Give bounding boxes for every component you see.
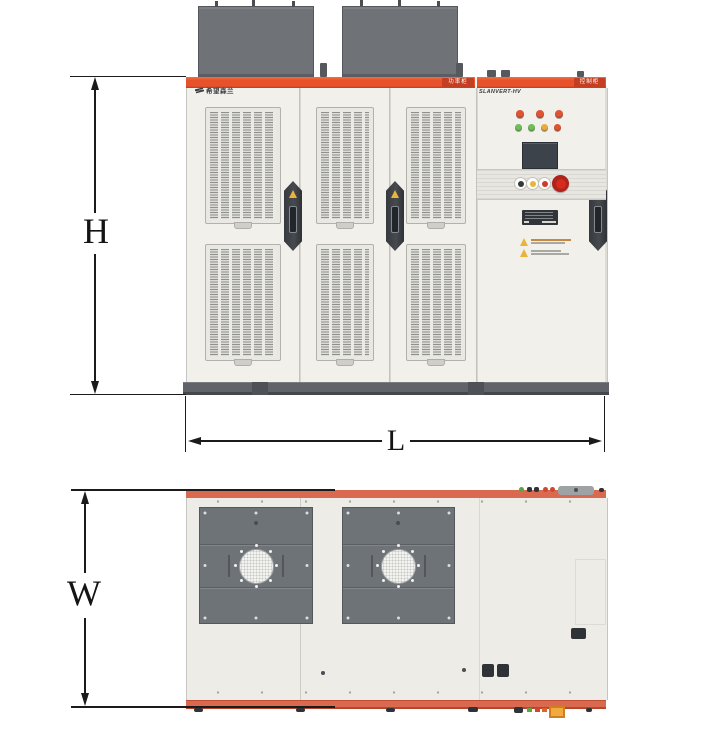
brand-logo: 希望森兰 [195, 85, 234, 95]
dimension-line [410, 440, 589, 442]
header-band [186, 77, 606, 88]
indicator-lamp [554, 124, 561, 131]
base-bracket [468, 382, 484, 395]
edge-fitting [599, 488, 604, 492]
screw-row [196, 691, 600, 694]
fan-bolt-dot [411, 579, 414, 582]
fan-bolt-dot [376, 564, 379, 567]
fan-bolt-dot [397, 544, 400, 547]
fan-bolt-dot [417, 564, 420, 567]
arrowhead-down [91, 381, 99, 394]
pushbutton [515, 178, 526, 189]
louvres [210, 249, 276, 356]
pushbutton-cap [542, 181, 548, 187]
sticker-text-line [531, 242, 565, 244]
rear-foot [194, 708, 203, 712]
access-panel-outline [575, 559, 606, 625]
screw-dot [254, 521, 258, 525]
cable-gland [482, 664, 494, 677]
vent-slot [282, 555, 284, 577]
grille-latch [336, 359, 354, 366]
vent-slot [424, 555, 426, 577]
screw-dot [462, 668, 466, 672]
grille-latch [234, 222, 252, 229]
base-plinth [183, 382, 609, 395]
roof-bolt-tip [398, 0, 401, 6]
fan-bolt-dot [255, 544, 258, 547]
lifting-lug [320, 63, 327, 77]
fan-plate [342, 507, 455, 624]
sticker-text-line [531, 250, 561, 252]
panel-seam [479, 498, 480, 700]
indicator-lamp [536, 110, 544, 118]
roof-bolt-tip [215, 1, 218, 7]
indicator-lamp [528, 124, 535, 131]
rear-foot [586, 708, 592, 712]
brand-s-icon [195, 87, 204, 94]
fan-bolt-dot [234, 564, 237, 567]
dimension-line [84, 618, 86, 695]
fan-bolt-dot [240, 579, 243, 582]
lifting-lug [456, 63, 463, 77]
emergency-stop-button [552, 175, 569, 192]
rear-foot [468, 707, 478, 712]
sticker-text-line [531, 253, 569, 255]
vent-grille [205, 107, 281, 224]
rear-terminal-red [535, 708, 540, 712]
brand-logo-text: 希望森兰 [206, 85, 234, 95]
fan-bolt-dot [255, 585, 258, 588]
indicator-lamp [515, 124, 522, 131]
rear-junction-box [549, 706, 565, 718]
fan-bolt-dot [382, 550, 385, 553]
extension-line [71, 489, 335, 491]
control-cabinet-badge: 控制柜 [574, 78, 605, 87]
pilot-device-red [543, 487, 548, 492]
door-divider [476, 88, 478, 382]
handle-slot [594, 206, 602, 233]
handle-slot [391, 206, 399, 233]
warning-triangle-icon [520, 238, 528, 246]
dimension-line [94, 89, 96, 213]
vent-slot [371, 555, 373, 577]
extension-line [71, 706, 335, 708]
roof-duct-box-right [342, 6, 458, 78]
roof-fitting [487, 70, 496, 77]
hmi-screen [522, 142, 558, 169]
extension-line [185, 396, 186, 452]
extension-line [70, 76, 186, 77]
fan-plate [199, 507, 313, 624]
pilot-device-red [550, 487, 555, 492]
louvres [321, 112, 369, 219]
indicator-lamp [541, 124, 548, 131]
length-label: L [382, 424, 410, 457]
warning-sticker [520, 238, 571, 246]
pushbutton-cap [518, 181, 524, 187]
extension-line [70, 394, 186, 395]
roof-fitting [501, 70, 510, 77]
pushbutton [527, 178, 538, 189]
screw-row [196, 500, 600, 503]
roof-bolt-tip [437, 1, 440, 7]
drawing-canvas: 功率柜 控制柜 希望森兰 SLANVERT-HV [0, 0, 726, 737]
rear-connector [514, 707, 523, 713]
vent-grille [316, 107, 374, 224]
pushbutton [539, 178, 550, 189]
vent-grille [406, 107, 466, 224]
louvres [210, 112, 276, 219]
roof-bolt-tip [292, 1, 295, 7]
vent-grille [205, 244, 281, 361]
louvres [411, 112, 461, 219]
warning-triangle-icon [520, 249, 528, 257]
dimension-line [84, 503, 86, 573]
nameplate-logo-chip [524, 221, 529, 223]
fan-bolt-dot [269, 579, 272, 582]
product-model-label: SLANVERT-HV [479, 89, 521, 95]
cabinet-section-divider [475, 77, 477, 88]
fan-bolt-dot [397, 585, 400, 588]
vent-slot [228, 555, 230, 577]
width-label: W [60, 572, 108, 614]
warning-triangle-icon [289, 190, 297, 198]
grille-latch [427, 222, 445, 229]
indicator-lamp [555, 110, 563, 118]
rear-terminal-orange [542, 708, 547, 712]
fan-hub [239, 549, 274, 584]
door-handle [284, 181, 302, 251]
arrowhead-down [81, 693, 89, 706]
screw-dot [396, 521, 400, 525]
rear-foot [296, 708, 305, 712]
door-handle [386, 181, 404, 251]
louvres [321, 249, 369, 356]
screw-dot [321, 671, 325, 675]
nameplate-band [542, 221, 556, 223]
warning-sticker [520, 249, 569, 257]
grille-latch [234, 359, 252, 366]
vent-grille [316, 244, 374, 361]
edge-fitting [527, 487, 532, 492]
louvres [411, 249, 461, 356]
edge-fitting [534, 487, 539, 492]
fan-hub [381, 549, 416, 584]
dimension-line [94, 254, 96, 381]
fan-bolt-dot [269, 550, 272, 553]
estop-cap [556, 179, 566, 189]
indicator-lamp [516, 110, 524, 118]
height-label: H [78, 211, 114, 251]
pilot-device-green [519, 487, 524, 492]
screw-dot [574, 488, 578, 492]
fan-bolt-dot [240, 550, 243, 553]
dimension-line [201, 440, 382, 442]
roof-bolt-tip [252, 0, 255, 6]
rear-terminal-green [527, 708, 532, 712]
base-bracket [252, 382, 268, 395]
nameplate [522, 210, 558, 225]
arrowhead-left [188, 437, 201, 445]
pushbutton-cap [530, 181, 536, 187]
grille-latch [336, 222, 354, 229]
vent-grille [406, 244, 466, 361]
warning-triangle-icon [391, 190, 399, 198]
handle-slot [289, 206, 297, 233]
rear-foot [386, 708, 395, 712]
cable-gland [571, 628, 586, 639]
power-cabinet-badge: 功率柜 [442, 78, 474, 87]
fan-bolt-dot [275, 564, 278, 567]
fan-bolt-dot [411, 550, 414, 553]
fan-bolt-dot [382, 579, 385, 582]
sticker-text-line [531, 239, 571, 241]
roof-duct-box-left [198, 6, 314, 78]
extension-line [604, 396, 605, 452]
cable-gland [497, 664, 509, 677]
roof-bolt-tip [360, 0, 363, 6]
grille-latch [427, 359, 445, 366]
arrowhead-right [589, 437, 602, 445]
